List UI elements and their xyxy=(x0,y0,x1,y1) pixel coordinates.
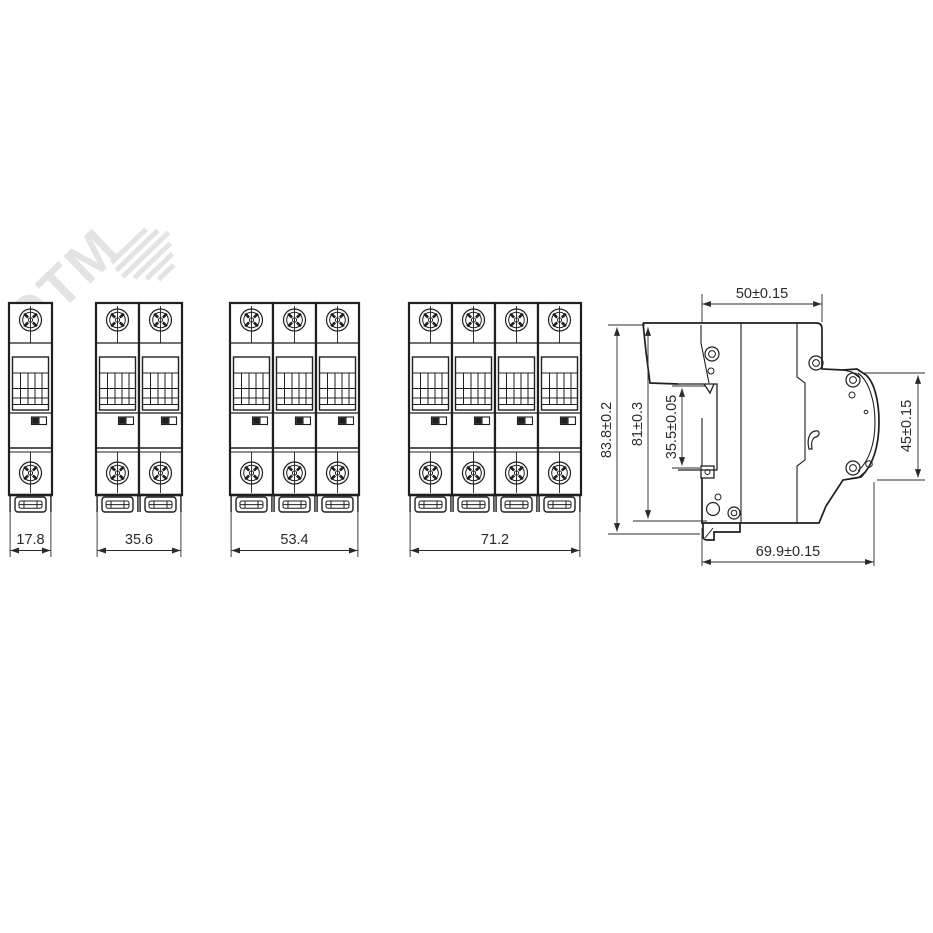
front-view-1pole: 17.8 xyxy=(9,303,53,557)
width-dim-label-2pole: 35.6 xyxy=(125,532,153,548)
dim-label-body-height: 81±0.3 xyxy=(630,402,646,446)
dim-label-overall-height: 83.8±0.2 xyxy=(599,402,615,458)
dimension-front-height: 45±0.15 xyxy=(862,373,925,480)
width-dimension: 53.4 xyxy=(231,512,358,557)
side-rivets xyxy=(705,347,872,519)
dimension-overall-height: 83.8±0.2 xyxy=(599,325,700,534)
width-dim-label-4pole: 71.2 xyxy=(481,532,509,548)
front-view-3pole: 53.4 xyxy=(230,303,360,557)
dimension-overall-depth: 69.9±0.15 xyxy=(702,482,874,566)
breaker-dimension-drawing: ЭТМ 17.8 35.6 xyxy=(0,0,933,933)
dimension-din-slot: 35.5±0.05 xyxy=(664,386,706,468)
width-dimension: 17.8 xyxy=(10,512,51,557)
front-view-2pole: 35.6 xyxy=(96,303,183,557)
width-dim-label-3pole: 53.4 xyxy=(280,532,308,548)
dim-label-front-height: 45±0.15 xyxy=(899,400,915,452)
dim-label-top-depth: 50±0.15 xyxy=(736,286,788,302)
width-dimension: 35.6 xyxy=(97,512,181,557)
width-dim-label-1pole: 17.8 xyxy=(16,532,44,548)
dim-label-overall-depth: 69.9±0.15 xyxy=(756,544,820,560)
din-rail-slot xyxy=(678,384,717,478)
width-dimension: 71.2 xyxy=(410,512,580,557)
side-view: 50±0.15 83.8±0.2 81±0.3 35.5±0.05 4 xyxy=(599,286,925,566)
dimension-top-depth: 50±0.15 xyxy=(702,286,822,322)
front-view-4pole: 71.2 xyxy=(409,303,582,557)
dim-label-din-slot: 35.5±0.05 xyxy=(664,395,680,459)
technical-drawing-page: ЭТМ 17.8 35.6 xyxy=(0,0,933,933)
